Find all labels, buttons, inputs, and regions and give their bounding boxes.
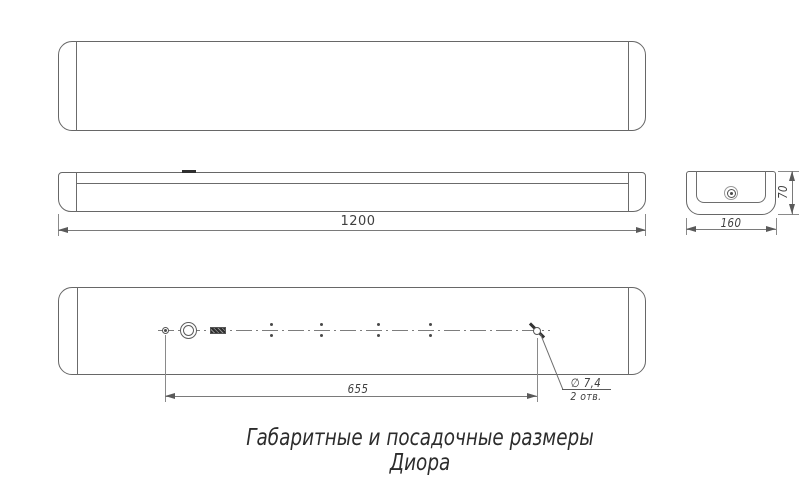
dim-spacing-extension-left [165,335,166,402]
hole-pair-1-bottom [270,334,273,337]
dim-spacing-line [165,396,537,397]
bottom-view-outline [58,287,646,375]
hole-pair-2-top [320,323,323,326]
dim-spacing-arrow-right [527,393,537,399]
front-view-outline [58,172,646,212]
hole-pair-3-bottom [377,334,380,337]
dim-spacing-extension-right [537,338,538,402]
hole-pair-4-bottom [429,334,432,337]
terminal-block [210,327,226,334]
end-view-cable-gland-center [730,192,733,195]
front-view-hanger-tab [182,170,196,173]
technical-drawing-canvas: 1200 160 70 ∅ 7,4 2 отв. 655 [0,0,800,486]
top-view-outline [58,41,646,131]
cable-gland-inner [183,325,194,336]
bottom-view-left-endcap-line [77,287,78,375]
dim-length-line [58,230,646,231]
hole-quantity-label: 2 отв. [563,390,609,403]
bottom-view-right-endcap-line [628,287,629,375]
dim-length-arrow-left [58,227,68,233]
front-view-diffuser-line [77,183,628,184]
dim-length-arrow-right [636,227,646,233]
dim-width-label: 160 [706,216,757,230]
mounting-screw-hole-center [164,329,167,332]
dim-height-arrow-top [789,171,795,181]
dim-height-arrow-bottom [789,204,795,214]
front-view-left-endcap-line [76,172,77,212]
dim-width-arrow-right [766,226,776,232]
front-view-right-endcap-line [628,172,629,212]
dim-width-arrow-left [686,226,696,232]
dim-spacing-arrow-left [165,393,175,399]
dim-height-label: 70 [776,181,790,203]
hole-pair-4-top [429,323,432,326]
top-view-right-endcap-line [628,41,629,131]
hole-pair-1-top [270,323,273,326]
dim-height-extension-bottom [778,214,799,215]
caption-line2: Диора [196,451,644,476]
hole-diameter-label: ∅ 7,4 [561,376,610,390]
hole-pair-3-top [377,323,380,326]
hole-pair-2-bottom [320,334,323,337]
dim-width-extension-right [776,218,777,235]
drawing-caption: Габаритные и посадочные размеры Диора [140,425,700,476]
dim-spacing-label: 655 [327,382,388,396]
top-view-left-endcap-line [76,41,77,131]
caption-line1: Габаритные и посадочные размеры [196,425,644,451]
dim-length-label: 1200 [322,214,394,229]
